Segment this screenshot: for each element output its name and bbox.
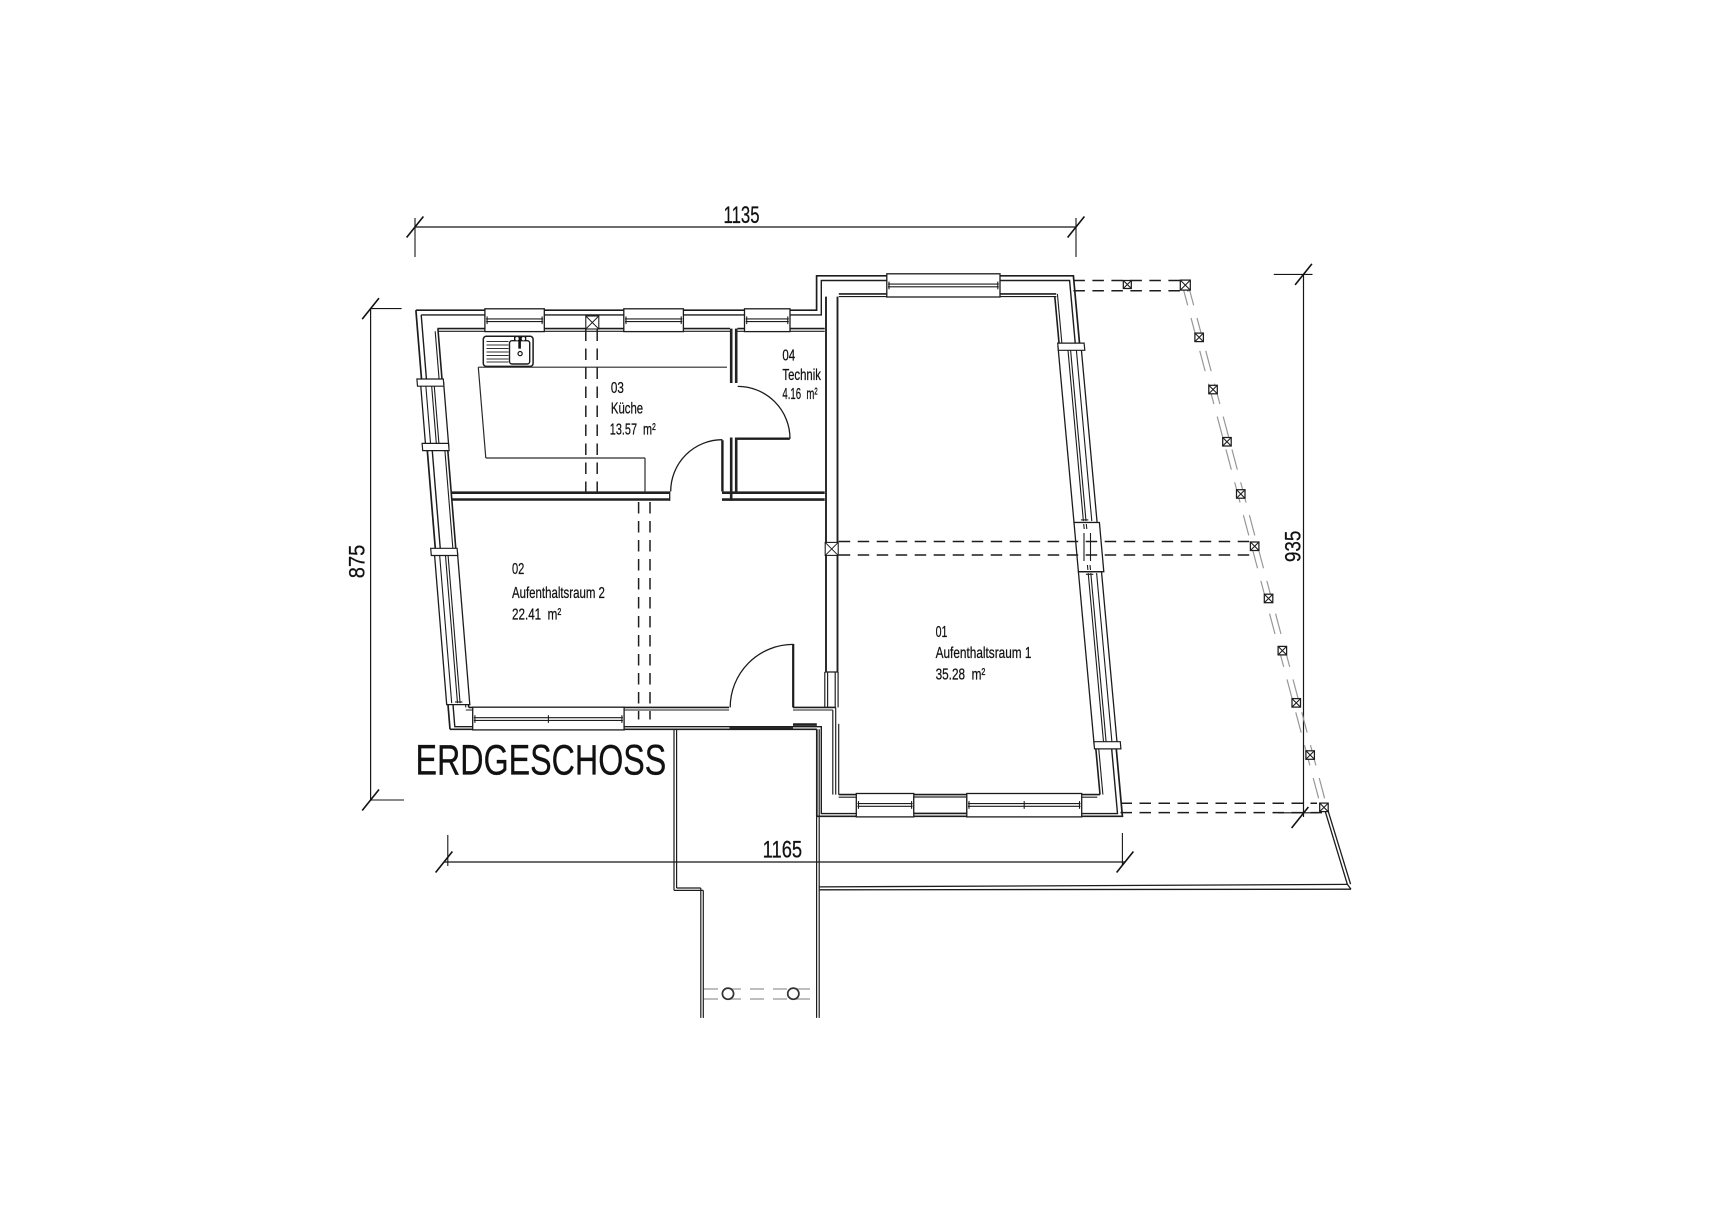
svg-text:ERDGESCHOSS: ERDGESCHOSS xyxy=(416,737,667,785)
svg-text:02: 02 xyxy=(512,561,524,578)
svg-text:01: 01 xyxy=(936,624,948,641)
svg-text:13.57 m²: 13.57 m² xyxy=(610,421,656,438)
svg-text:1135: 1135 xyxy=(724,202,760,229)
svg-text:875: 875 xyxy=(345,545,370,579)
svg-text:935: 935 xyxy=(1281,531,1306,563)
svg-text:Aufenthaltsraum 1: Aufenthaltsraum 1 xyxy=(936,645,1032,662)
svg-text:4.16 m²: 4.16 m² xyxy=(782,386,818,403)
svg-text:Aufenthaltsraum 2: Aufenthaltsraum 2 xyxy=(512,585,605,602)
svg-text:Küche: Küche xyxy=(611,401,643,418)
svg-text:22.41 m²: 22.41 m² xyxy=(512,606,562,623)
svg-text:03: 03 xyxy=(611,380,624,397)
svg-text:Technik: Technik xyxy=(782,367,821,384)
svg-text:04: 04 xyxy=(782,347,795,364)
svg-text:35.28 m²: 35.28 m² xyxy=(936,667,986,684)
svg-text:1165: 1165 xyxy=(763,837,803,864)
